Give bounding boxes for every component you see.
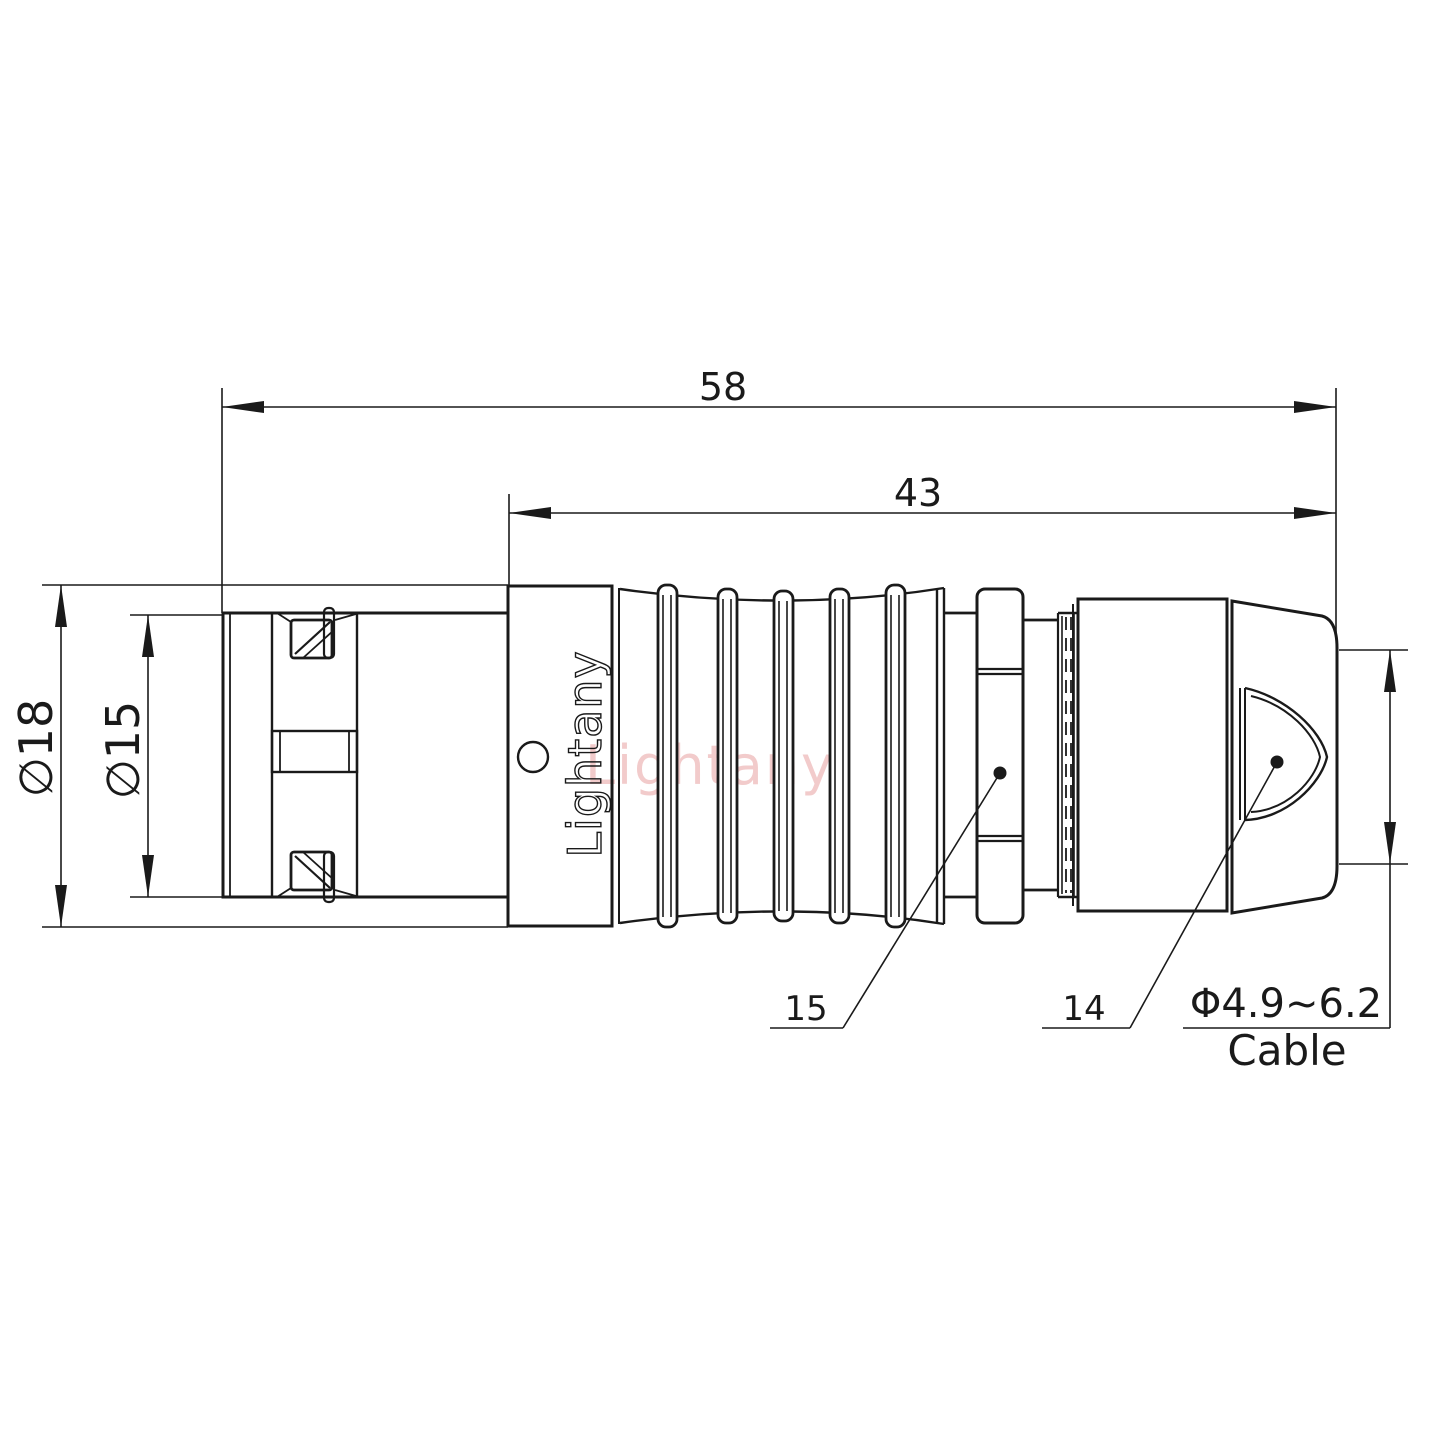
dim-front-diameter: ∅15	[96, 615, 223, 897]
brand-logo-text: Lightany	[558, 650, 612, 857]
rib	[886, 585, 905, 927]
housing-outline	[1078, 599, 1227, 911]
dim-value-d18: ∅18	[9, 699, 63, 798]
neck	[1023, 620, 1058, 890]
latch-spring-bottom	[303, 852, 334, 880]
arrowhead-left	[509, 507, 551, 519]
connector-dimension-drawing: Lightany 58 43 ∅18 ∅15	[0, 0, 1440, 1440]
arrowhead-down	[1384, 822, 1396, 864]
connector-grip: Lightany	[508, 586, 619, 926]
connector-boot	[1073, 599, 1337, 913]
latch-spring-top	[303, 630, 334, 658]
arrowhead-left	[222, 401, 264, 413]
release-hole	[518, 742, 548, 772]
arrowhead-up	[1384, 650, 1396, 692]
rib	[658, 585, 677, 927]
arrowhead-down	[142, 855, 154, 897]
item-number-14: 14	[1062, 989, 1105, 1029]
item-number-15: 15	[784, 989, 827, 1029]
thread-block-edge	[1058, 613, 1078, 897]
rib	[830, 589, 849, 923]
connector-nose	[223, 608, 508, 902]
dim-value-cable-range: Φ4.9~6.2	[1190, 981, 1382, 1027]
cable-label: Cable	[1227, 1026, 1346, 1075]
leader-dot	[1271, 756, 1284, 769]
dim-value-d15: ∅15	[96, 701, 150, 800]
key-band	[272, 731, 357, 772]
dim-rear-length: 43	[509, 471, 1336, 585]
leader-dot	[994, 767, 1007, 780]
rib	[718, 589, 737, 923]
arrowhead-right	[1294, 507, 1336, 519]
notch-edge	[335, 890, 356, 896]
watermark-text: Lightany	[585, 734, 835, 797]
technical-drawing-page: Lightany 58 43 ∅18 ∅15	[0, 0, 1440, 1440]
arrowhead-down	[55, 885, 67, 927]
arrowhead-up	[142, 615, 154, 657]
coupling-nut	[977, 589, 1023, 923]
arrowhead-up	[55, 585, 67, 627]
dim-value-43: 43	[894, 471, 942, 515]
notch-edge	[335, 614, 356, 620]
dim-outer-diameter: ∅18	[9, 585, 508, 927]
rib	[774, 591, 793, 921]
boot-cone	[1232, 601, 1337, 913]
arrowhead-right	[1294, 401, 1336, 413]
connector-nut-assembly	[944, 589, 1078, 923]
nose-outline	[223, 613, 508, 897]
dim-value-58: 58	[699, 365, 747, 409]
thread-dashed-line	[1066, 617, 1071, 893]
connector-bellows	[620, 585, 944, 927]
